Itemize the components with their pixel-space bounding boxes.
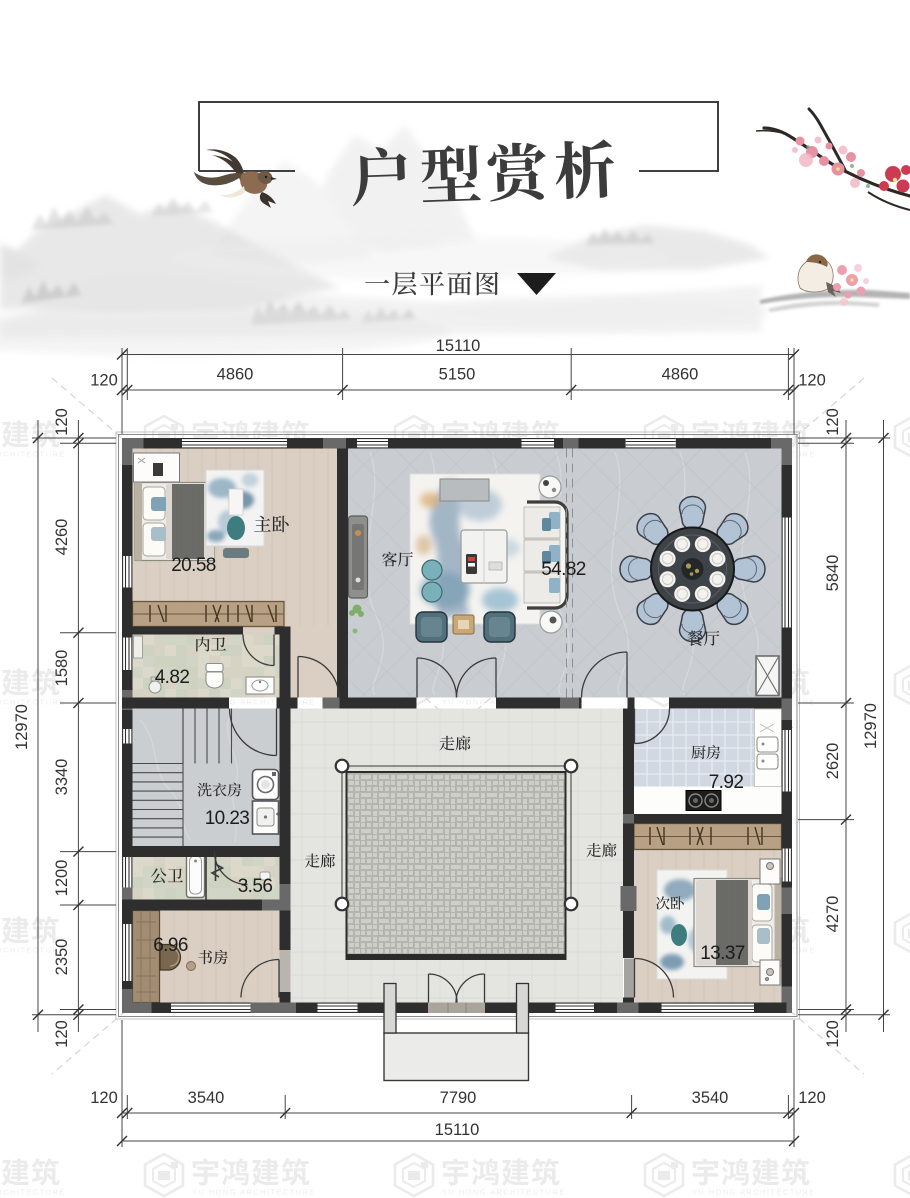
- svg-text:3540: 3540: [188, 1089, 225, 1107]
- svg-text:120: 120: [824, 408, 842, 436]
- svg-text:12970: 12970: [13, 704, 31, 750]
- svg-text:1580: 1580: [53, 650, 71, 687]
- svg-text:3340: 3340: [53, 759, 71, 796]
- svg-text:120: 120: [90, 1089, 118, 1107]
- svg-text:4860: 4860: [662, 366, 699, 384]
- svg-text:13.37: 13.37: [700, 943, 745, 964]
- svg-text:15110: 15110: [436, 337, 481, 355]
- svg-text:12970: 12970: [862, 703, 880, 749]
- svg-text:2620: 2620: [824, 743, 842, 780]
- svg-text:120: 120: [53, 1020, 71, 1048]
- svg-text:6.96: 6.96: [153, 935, 188, 956]
- svg-text:4860: 4860: [217, 366, 254, 384]
- svg-text:1200: 1200: [53, 860, 71, 897]
- svg-text:120: 120: [53, 408, 71, 436]
- svg-text:120: 120: [90, 372, 118, 390]
- svg-text:5150: 5150: [439, 366, 476, 384]
- svg-text:20.58: 20.58: [171, 555, 216, 576]
- svg-text:4260: 4260: [53, 519, 71, 556]
- svg-text:120: 120: [824, 1020, 842, 1048]
- svg-text:7790: 7790: [440, 1089, 477, 1107]
- svg-text:3.56: 3.56: [238, 876, 273, 897]
- svg-text:120: 120: [798, 1089, 826, 1107]
- svg-text:4.82: 4.82: [155, 667, 190, 688]
- svg-text:120: 120: [798, 372, 826, 390]
- svg-text:54.82: 54.82: [541, 559, 586, 580]
- svg-text:5840: 5840: [824, 555, 842, 592]
- svg-text:4270: 4270: [824, 896, 842, 933]
- svg-text:2350: 2350: [53, 939, 71, 976]
- svg-text:3540: 3540: [692, 1089, 729, 1107]
- svg-text:7.92: 7.92: [709, 772, 744, 793]
- svg-text:10.23: 10.23: [205, 808, 250, 829]
- svg-text:15110: 15110: [435, 1121, 480, 1139]
